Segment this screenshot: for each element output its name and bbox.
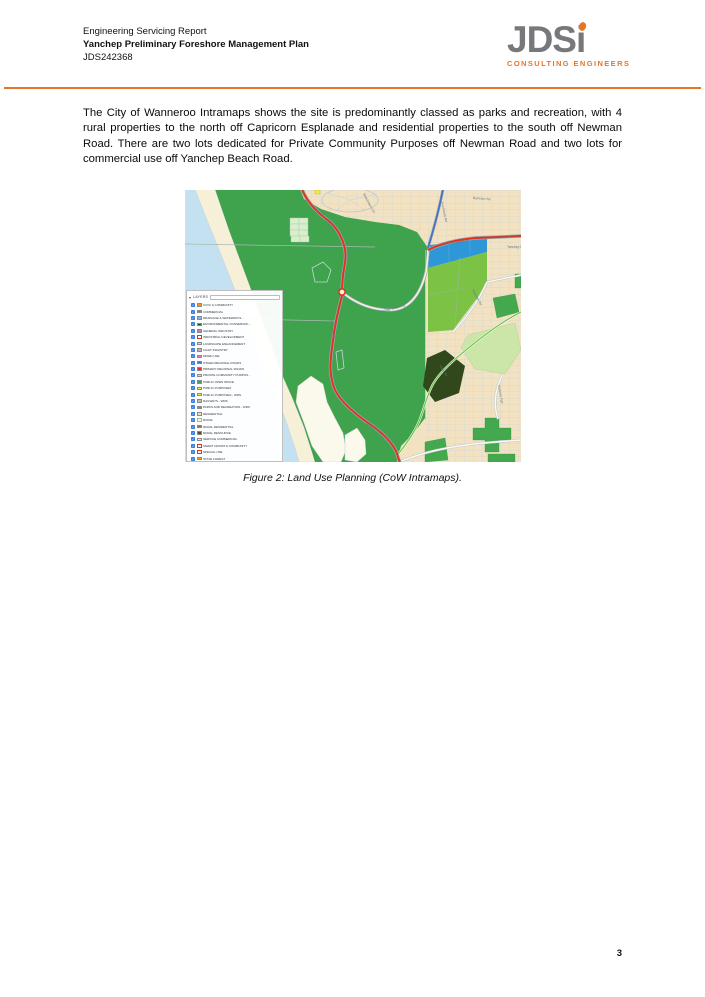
legend-label: STATE FOREST	[203, 457, 225, 461]
legend-swatch	[197, 361, 202, 365]
legend-swatch	[197, 342, 202, 346]
legend-label: PRIMARY REGIONAL ROADS	[203, 367, 244, 371]
legend-label: SMART GROWTH COMMUNITY	[203, 444, 247, 448]
job-number: JDS242368	[83, 51, 309, 64]
rural-lots	[290, 218, 309, 242]
legend-swatch	[197, 425, 202, 429]
legend-label: RURAL RESOURCE	[203, 431, 231, 435]
legend-label: PUBLIC PURPOSES - WRS	[203, 393, 241, 397]
legend-label: SERVICE COMMERCIAL	[203, 437, 237, 441]
legend-label: RURAL	[203, 418, 213, 422]
legend-swatch	[197, 335, 202, 339]
legend-label: SPECIAL USE	[203, 450, 223, 454]
legend-label: RAILWAYS - WRS	[203, 399, 228, 403]
legend-swatch	[197, 387, 202, 391]
legend-swatch	[197, 367, 202, 371]
layer-checkbox-icon: ✓	[191, 399, 195, 403]
layer-checkbox-icon: ✓	[191, 425, 195, 429]
legend-swatch	[197, 457, 202, 461]
figure-caption: Figure 2: Land Use Planning (CoW Intrama…	[0, 472, 705, 484]
page-number: 3	[617, 948, 622, 959]
legend-swatch	[197, 303, 202, 307]
legend-swatch	[197, 310, 202, 314]
legend-label: COMMERCIAL	[203, 310, 223, 314]
map-layers-legend: ▾ LAYERS ✓CIVIC & COMMUNITY✓COMMERCIAL✓D…	[186, 290, 283, 462]
legend-label: MIXED USE	[203, 354, 220, 358]
layer-checkbox-icon: ✓	[191, 367, 195, 371]
legend-label: DRAINAGE & WATERWAYS...	[203, 316, 244, 320]
legend-swatch	[197, 444, 202, 448]
layer-checkbox-icon: ✓	[191, 380, 195, 384]
layer-checkbox-icon: ✓	[191, 386, 195, 390]
layer-checkbox-icon: ✓	[191, 342, 195, 346]
layer-checkbox-icon: ✓	[191, 303, 195, 307]
report-page: Engineering Servicing Report Yanchep Pre…	[0, 0, 705, 997]
roundabout	[339, 289, 345, 295]
legend-label: LANDSCAPE ENHANCEMENT	[203, 342, 245, 346]
road-label: Yanchep B	[507, 245, 521, 249]
layer-checkbox-icon: ✓	[191, 431, 195, 435]
layer-checkbox-icon: ✓	[191, 354, 195, 358]
legend-swatch	[197, 438, 202, 442]
legend-swatch	[197, 399, 202, 403]
layer-checkbox-icon: ✓	[191, 444, 195, 448]
legend-swatch	[197, 316, 202, 320]
layer-checkbox-icon: ✓	[191, 418, 195, 422]
legend-item: ✓STATE FOREST	[191, 455, 282, 461]
legend-label: CIVIC & COMMUNITY	[203, 303, 233, 307]
report-type: Engineering Servicing Report	[83, 25, 309, 38]
layer-checkbox-icon: ✓	[191, 322, 195, 326]
legend-label: LIGHT INDUSTRY	[203, 348, 228, 352]
layer-checkbox-icon: ✓	[191, 373, 195, 377]
body-paragraph: The City of Wanneroo Intramaps shows the…	[83, 106, 622, 168]
logo-text-jds: JDS	[507, 19, 576, 60]
legend-swatch	[197, 418, 202, 422]
legend-swatch	[197, 431, 202, 435]
legend-header: ▾ LAYERS	[187, 291, 282, 302]
legend-label: ENVIRONMENTAL CONSERVATI...	[203, 322, 251, 326]
logo-text-i: i	[576, 22, 585, 58]
legend-swatch	[197, 374, 202, 378]
layer-checkbox-icon: ✓	[191, 316, 195, 320]
legend-swatch	[197, 450, 202, 454]
legend-label: GENERAL INDUSTRY	[203, 329, 233, 333]
legend-search-input	[210, 295, 280, 300]
legend-label: PRIVATE COMMUNITY PURPOS...	[203, 373, 251, 377]
layer-checkbox-icon: ✓	[191, 393, 195, 397]
legend-swatch	[197, 412, 202, 416]
jdsi-logo-wordmark: JDSi	[507, 22, 633, 58]
report-title: Yanchep Preliminary Foreshore Management…	[83, 38, 309, 51]
layer-checkbox-icon: ✓	[191, 329, 195, 333]
legend-swatch	[197, 393, 202, 397]
jdsi-logo: JDSi CONSULTING ENGINEERS	[507, 22, 633, 68]
legend-items: ✓CIVIC & COMMUNITY✓COMMERCIAL✓DRAINAGE &…	[187, 302, 282, 462]
landuse-map-figure: Barteaux ApBeachhaven DrTwo Rocks RdYanc…	[185, 190, 521, 462]
layer-checkbox-icon: ✓	[191, 437, 195, 441]
chevron-down-icon: ▾	[189, 295, 191, 300]
legend-swatch	[197, 355, 202, 359]
legend-label: RESIDENTIAL	[203, 412, 223, 416]
legend-title: LAYERS	[193, 295, 208, 299]
layer-checkbox-icon: ✓	[191, 310, 195, 314]
layer-checkbox-icon: ✓	[191, 361, 195, 365]
layer-checkbox-icon: ✓	[191, 412, 195, 416]
legend-swatch	[197, 406, 202, 410]
layer-checkbox-icon: ✓	[191, 405, 195, 409]
legend-label: PUBLIC PURPOSES	[203, 386, 231, 390]
legend-label: PUBLIC OPEN SPACE	[203, 380, 234, 384]
layer-checkbox-icon: ✓	[191, 348, 195, 352]
legend-label: RURAL RESIDENTIAL	[203, 425, 234, 429]
legend-label: OTHER REGIONAL ROADS	[203, 361, 241, 365]
legend-label: PARKS AND RECREATION - WRS	[203, 405, 250, 409]
legend-swatch	[197, 348, 202, 352]
layer-checkbox-icon: ✓	[191, 335, 195, 339]
layer-checkbox-icon: ✓	[191, 450, 195, 454]
layer-checkbox-icon: ✓	[191, 457, 195, 461]
legend-swatch	[197, 329, 202, 333]
legend-swatch	[197, 380, 202, 384]
legend-label: INDUSTRIAL DEVELOPMENT	[203, 335, 244, 339]
public-purposes-lot	[315, 190, 320, 194]
logo-tagline: CONSULTING ENGINEERS	[507, 59, 633, 68]
legend-swatch	[197, 323, 202, 327]
header-divider-rule	[4, 87, 701, 89]
document-header: Engineering Servicing Report Yanchep Pre…	[83, 25, 309, 64]
